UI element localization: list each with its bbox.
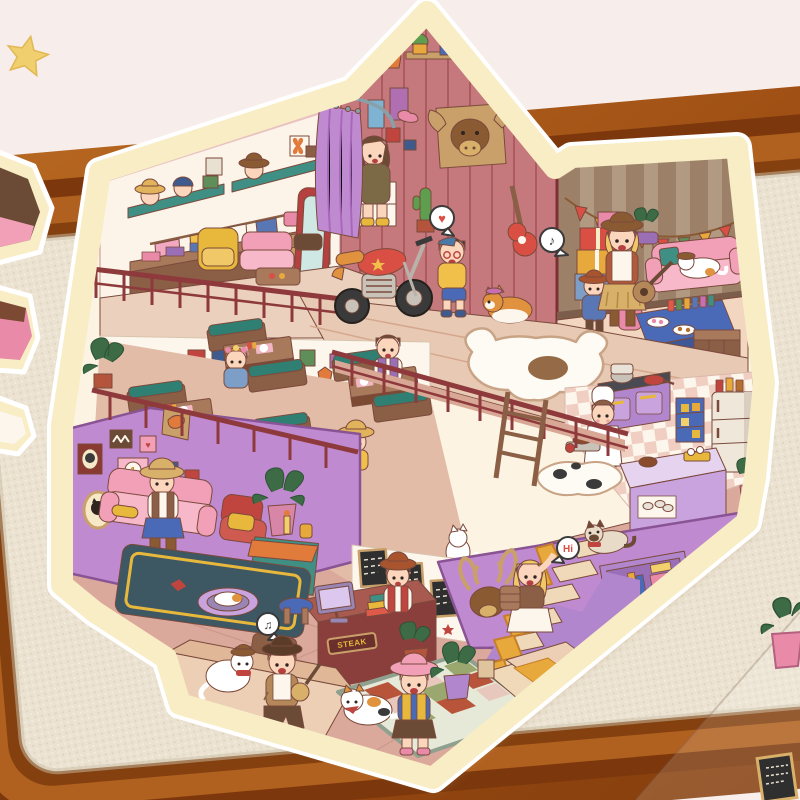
heart-mini-icon: ♥ [145,440,150,450]
spice-shelf [676,398,704,442]
grill-steak [639,457,657,467]
party-sofa [645,235,748,292]
back-basket [500,586,520,610]
illustration: ♥ ♪ [0,0,800,800]
curtain [315,104,362,238]
photo-of-sticker-scene: ♥ ♪ [0,0,800,800]
candle [284,516,290,534]
music-note-icon: ♪ [549,233,556,248]
coffee-table [256,268,300,285]
pink-loveseat [240,232,294,270]
frying-pan [644,375,664,385]
cowhide-rug [537,462,621,495]
partial-chalkboard-sticker [757,754,797,800]
svg-text:Hi: Hi [563,544,573,555]
dog-hat [486,288,502,294]
pet-bed [198,588,258,616]
music-note-icon: ♫ [264,618,273,632]
heart-icon: ♥ [438,211,446,226]
ottoman [294,234,322,250]
